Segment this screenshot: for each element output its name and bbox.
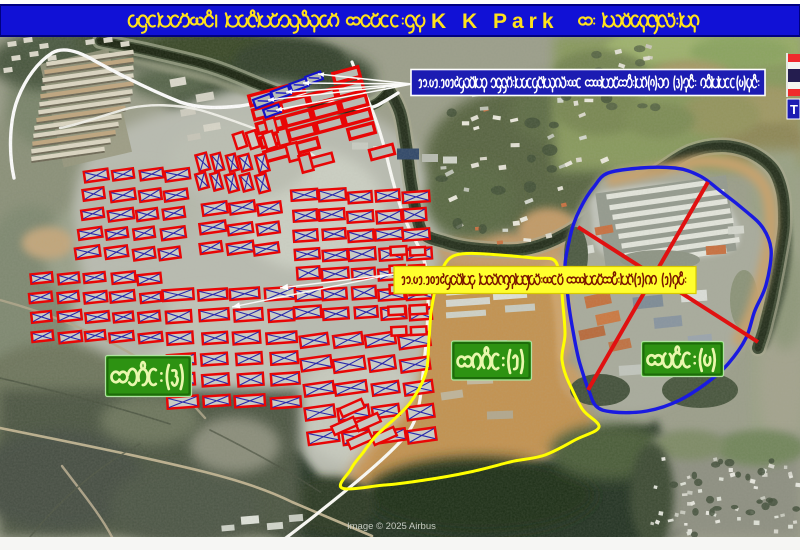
svg-text:Image © 2025 Airbus: Image © 2025 Airbus [347, 521, 436, 532]
svg-text:K K Park: K K Park [431, 10, 559, 33]
svg-text:T: T [790, 102, 798, 117]
